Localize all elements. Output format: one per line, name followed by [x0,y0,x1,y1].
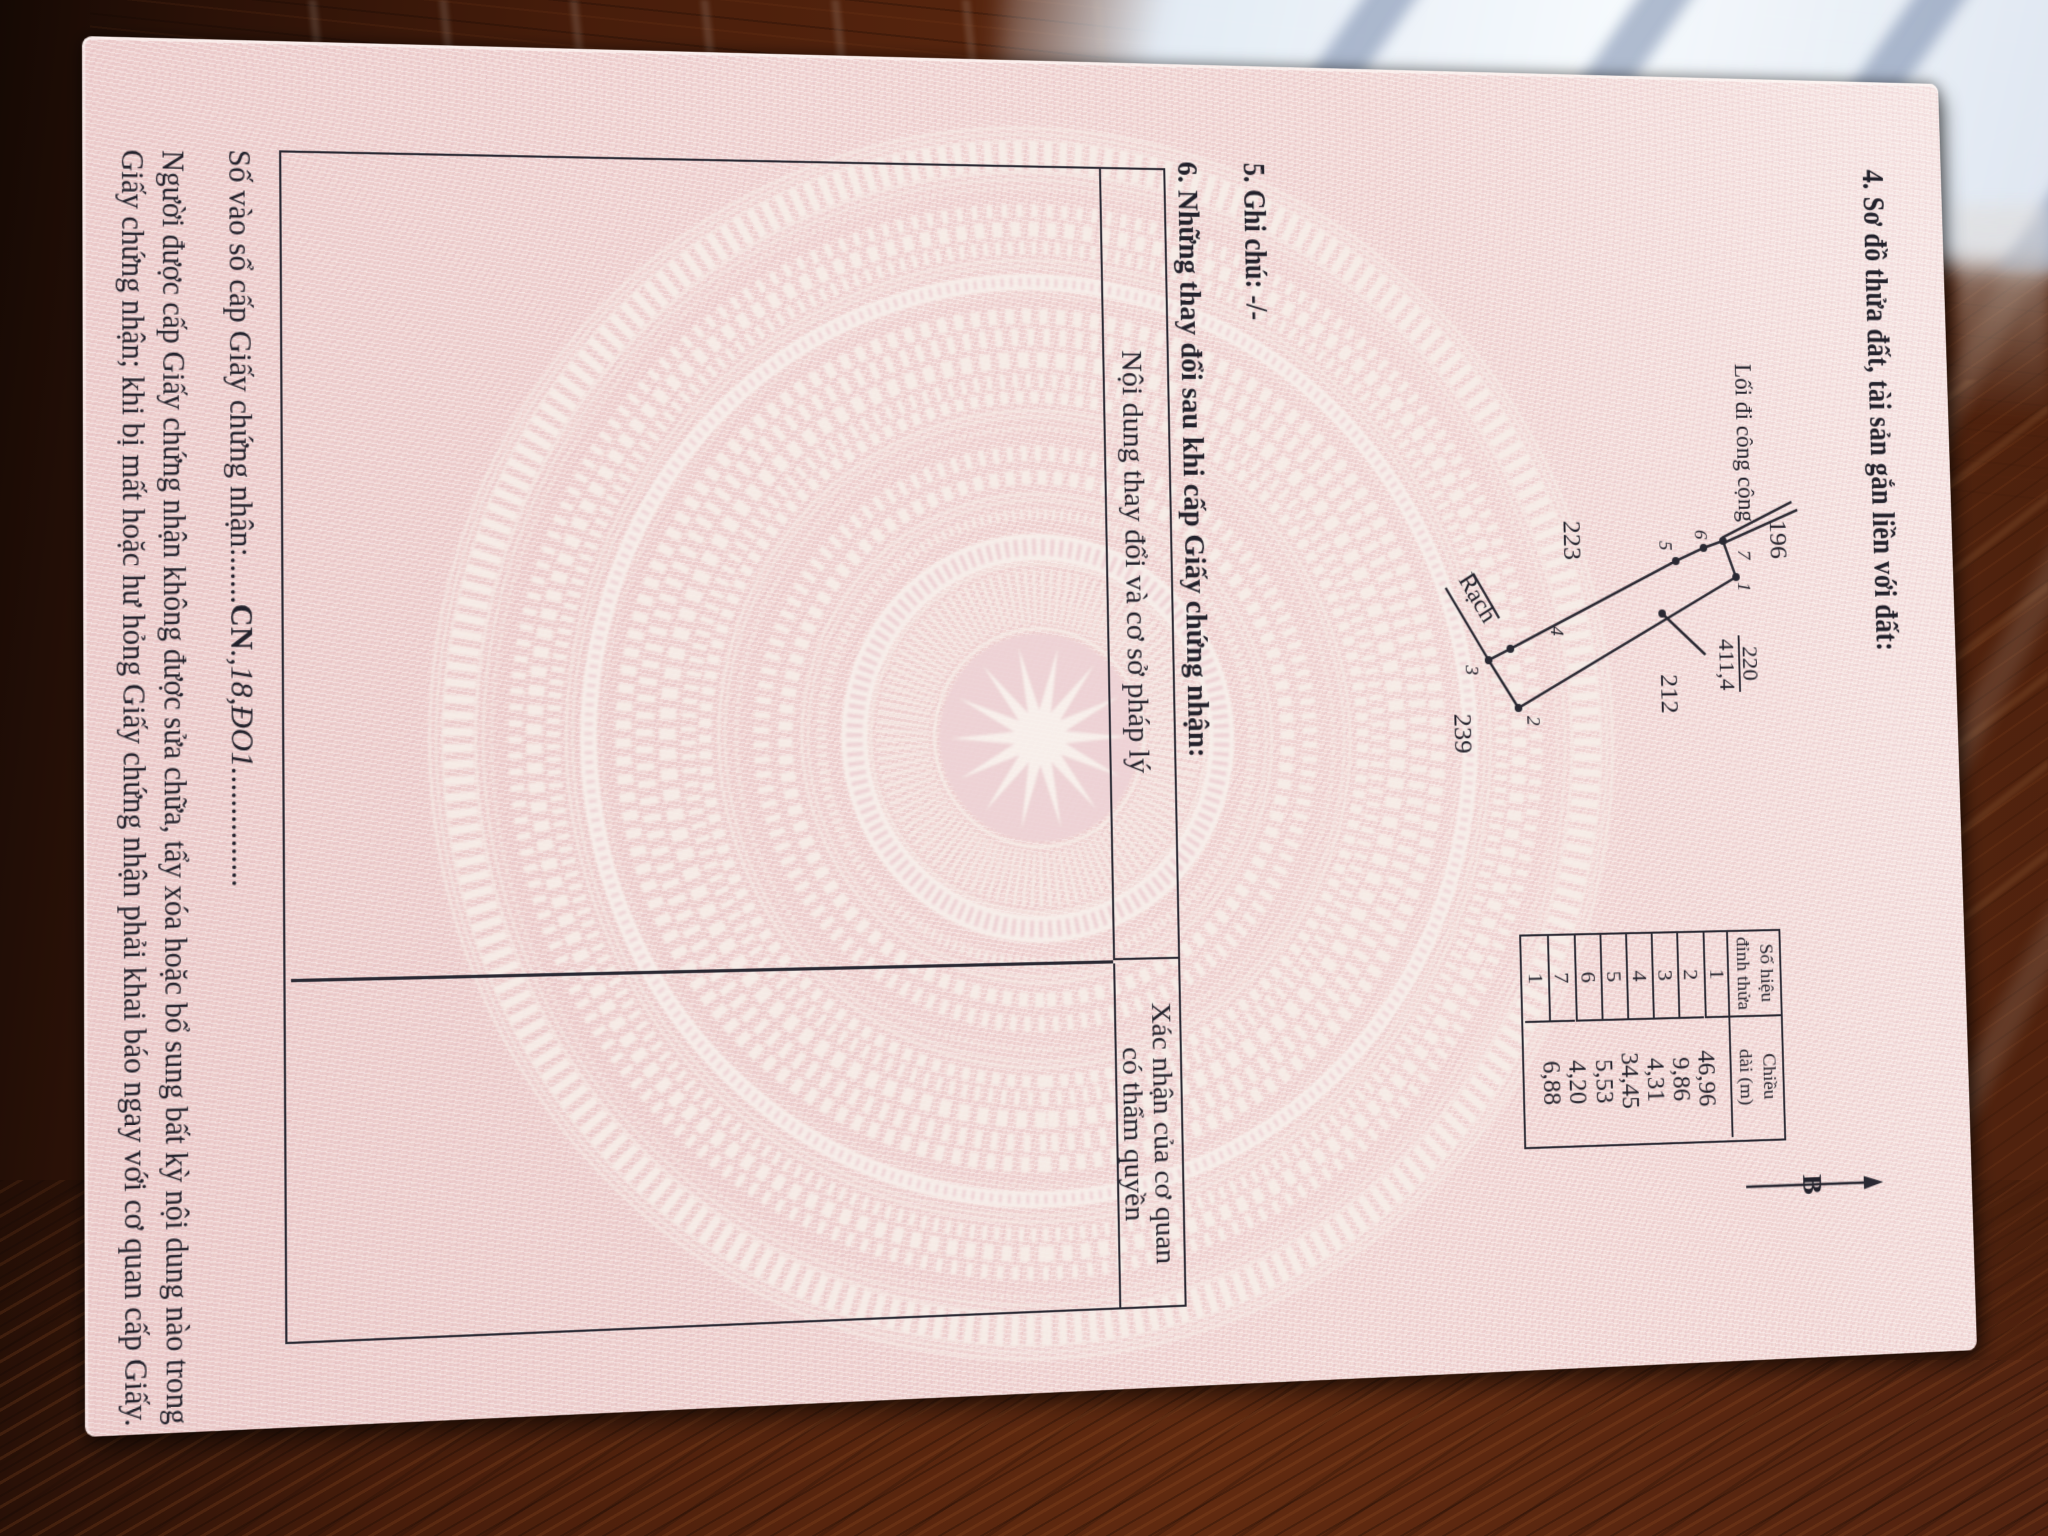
svg-text:Rạch: Rạch [1453,568,1502,628]
svg-text:B: B [1796,1174,1827,1196]
svg-text:212: 212 [1655,674,1684,714]
svg-text:223: 223 [1558,521,1587,561]
svg-text:239: 239 [1448,713,1477,753]
svg-text:196: 196 [1764,520,1792,559]
svg-text:411,4: 411,4 [1714,639,1739,691]
svg-text:220: 220 [1738,646,1762,681]
svg-text:5: 5 [1655,541,1675,551]
svg-text:6: 6 [1690,530,1710,540]
svg-text:1: 1 [1733,582,1753,592]
svg-text:7: 7 [1733,550,1753,561]
svg-text:2: 2 [1522,716,1543,726]
svg-text:3: 3 [1461,664,1482,675]
svg-text:4: 4 [1546,626,1566,636]
